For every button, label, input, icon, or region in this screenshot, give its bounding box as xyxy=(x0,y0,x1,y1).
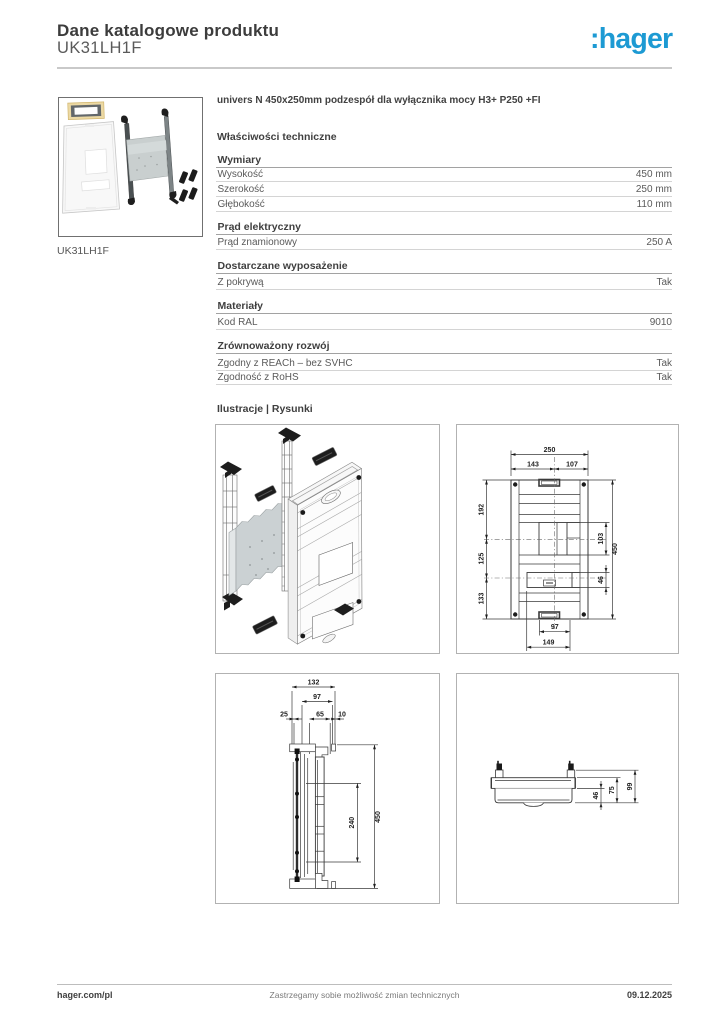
svg-text:450: 450 xyxy=(375,811,382,823)
svg-text:97: 97 xyxy=(551,624,559,631)
svg-text:125: 125 xyxy=(479,553,486,565)
svg-text:65: 65 xyxy=(316,712,324,719)
svg-text:99: 99 xyxy=(627,783,634,791)
svg-text:132: 132 xyxy=(308,680,320,687)
svg-text:143: 143 xyxy=(527,462,539,469)
svg-text:97: 97 xyxy=(313,694,321,701)
svg-text:192: 192 xyxy=(479,504,486,516)
svg-text:107: 107 xyxy=(566,462,578,469)
svg-text:75: 75 xyxy=(609,786,616,794)
svg-text:46: 46 xyxy=(598,576,605,584)
svg-text:133: 133 xyxy=(479,593,486,605)
svg-text:450: 450 xyxy=(612,543,619,555)
svg-text:46: 46 xyxy=(593,792,600,800)
svg-text:250: 250 xyxy=(544,447,556,454)
svg-text:25: 25 xyxy=(280,712,288,719)
svg-text:240: 240 xyxy=(349,817,356,829)
svg-text:149: 149 xyxy=(543,640,555,647)
svg-text:10: 10 xyxy=(338,712,346,719)
svg-text:103: 103 xyxy=(598,533,605,545)
